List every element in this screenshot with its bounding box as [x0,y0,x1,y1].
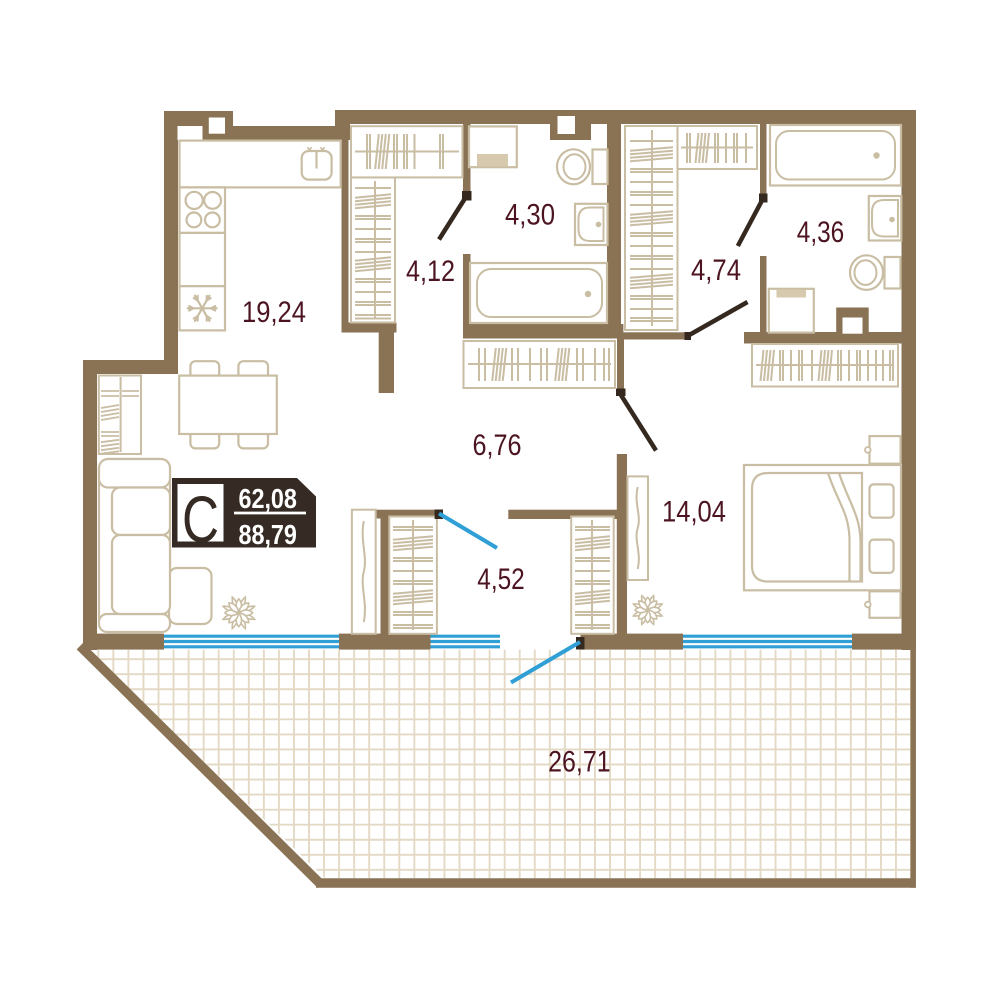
svg-text:4,52: 4,52 [477,563,525,596]
svg-text:4,30: 4,30 [505,199,555,232]
svg-text:4,12: 4,12 [406,255,455,288]
svg-text:4,74: 4,74 [691,254,741,287]
svg-text:4,36: 4,36 [797,216,845,249]
svg-text:19,24: 19,24 [242,296,306,329]
svg-text:88,79: 88,79 [238,519,297,550]
svg-text:62,08: 62,08 [238,483,297,514]
svg-text:6,76: 6,76 [473,429,522,462]
svg-text:26,71: 26,71 [548,746,611,779]
svg-text:C: C [182,482,219,556]
svg-text:14,04: 14,04 [662,496,726,529]
